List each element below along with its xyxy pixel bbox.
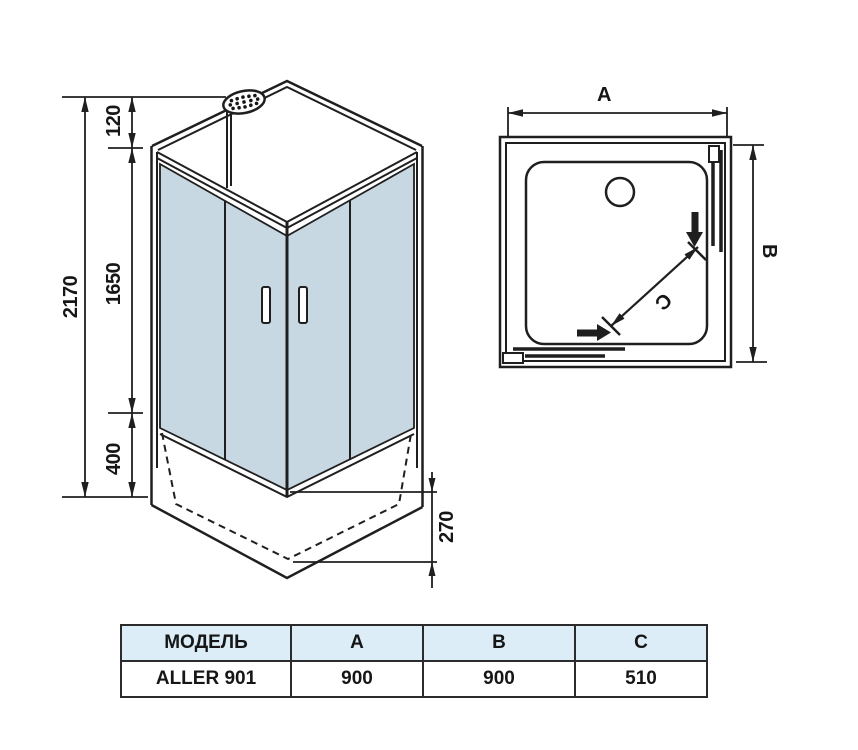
- glass-walls: [160, 164, 414, 497]
- arrow-up: [429, 562, 436, 576]
- tray-outline: [152, 505, 423, 578]
- header-a: A: [291, 625, 423, 661]
- plan-tray: [526, 162, 707, 344]
- dim-width-A: [508, 107, 727, 137]
- header-model: МОДЕЛЬ: [121, 625, 291, 661]
- dim-label-top-offset: 120: [103, 105, 125, 137]
- technical-drawing: 2170 120 1650 400 270: [0, 0, 858, 620]
- header-b: B: [423, 625, 575, 661]
- front-view-diagram: 2170 120 1650 400 270: [60, 81, 458, 588]
- value-b: 900: [423, 661, 575, 697]
- label-B: B: [758, 244, 780, 258]
- value-model: ALLER 901: [121, 661, 291, 697]
- header-c: C: [575, 625, 707, 661]
- shower-cabin-spec-sheet: 2170 120 1650 400 270: [0, 0, 858, 750]
- door-handle-right: [299, 287, 307, 323]
- door-roller: [709, 146, 719, 162]
- top-frame-outer: [152, 81, 422, 146]
- door-roller: [503, 353, 523, 363]
- dim-label-tray-depth: 270: [436, 511, 458, 543]
- dim-label-base-height: 400: [103, 443, 125, 475]
- door-handle-left: [262, 287, 270, 323]
- spec-table-header-row: МОДЕЛЬ A B C: [121, 625, 707, 661]
- top-view-diagram: A B C: [500, 84, 780, 367]
- value-c: 510: [575, 661, 707, 697]
- spec-table: МОДЕЛЬ A B C ALLER 901 900 900 510: [120, 624, 708, 698]
- dim-label-total-height: 2170: [60, 275, 82, 318]
- glass-panel-left: [160, 164, 287, 490]
- arrow-down: [429, 478, 436, 492]
- dim-label-glass-height: 1650: [103, 262, 125, 305]
- shower-head-icon: [221, 87, 267, 188]
- value-a: 900: [291, 661, 423, 697]
- label-A: A: [597, 84, 611, 106]
- spec-table-value-row: ALLER 901 900 900 510: [121, 661, 707, 697]
- dim-tray-depth: [290, 472, 437, 588]
